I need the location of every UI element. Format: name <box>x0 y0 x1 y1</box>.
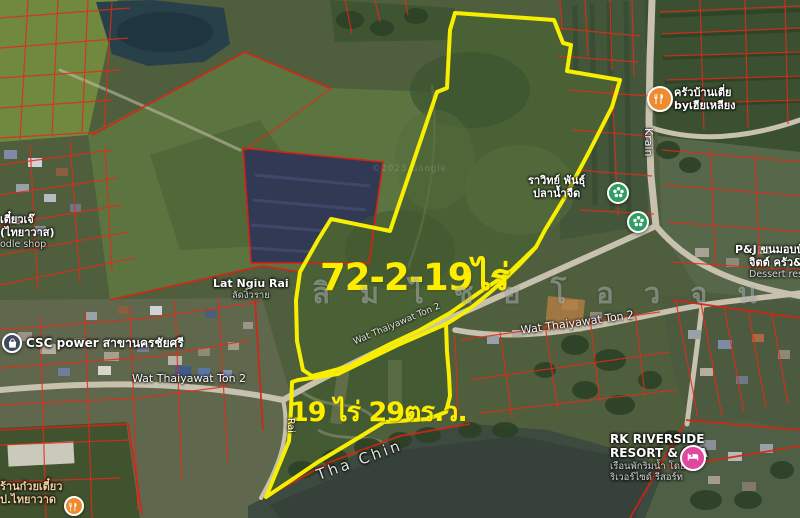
poi-category: Dessert resta <box>749 269 800 280</box>
poi-line: Lat Ngiu Rai <box>213 277 289 290</box>
poi-line: ป.ไทยาวาด <box>0 493 56 506</box>
poi-label-noodle-shop-topleft[interactable]: เตี๋ยวเจ๊ (ไทยาวาส) odle shop <box>0 213 55 251</box>
watermark-text: ลิ ม ไ ช ย โ อ ว จ น <box>312 270 767 316</box>
poi-line: จิตต์ ครัว& <box>749 256 800 269</box>
poi-label-krua-baan-tia[interactable]: ครัวบ้านเตี่ย byเฮียเหลียง <box>674 86 736 112</box>
poi-label-csc-power[interactable]: CSC power สาขานครชัยศรี <box>26 336 184 350</box>
restaurant-marker[interactable] <box>64 496 84 516</box>
poi-label-fish-farm[interactable]: ราวิทย์ พันธุ์ ปลาน้ำจืด <box>528 174 585 200</box>
lower-parcel-area-label: 19 ไร่ 29ตร.ว. <box>290 390 467 433</box>
poi-line: เตี๋ยวเจ๊ <box>0 213 34 226</box>
poi-line: ราวิทย์ พันธุ์ <box>528 174 585 187</box>
road-label-wat-thaiyawat-horizontal: Wat Thaiyawat Ton 2 <box>132 372 246 385</box>
poi-line: ปลาน้ำจืด <box>533 187 580 200</box>
poi-label-lat-ngiu-rai[interactable]: Lat Ngiu Rai ลัดงิ้วราย <box>213 277 289 302</box>
attraction-marker[interactable] <box>627 211 649 233</box>
poi-label-pj-dessert[interactable]: P&J ขนมอบบ้ จิตต์ ครัว& Dessert resta <box>735 243 800 281</box>
imagery-credit: ©2023 Google <box>372 164 447 174</box>
shopping-bag-icon <box>7 334 18 353</box>
fork-knife-icon <box>654 90 666 109</box>
poi-category: odle shop <box>0 239 55 250</box>
store-marker[interactable] <box>2 333 22 353</box>
road-label-rai: Rai <box>285 418 296 433</box>
poi-line: P&J ขนมอบบ้ <box>735 243 800 256</box>
poi-line: ร้านก๋วยเตี๋ยว <box>0 480 62 493</box>
flower-icon <box>632 213 645 232</box>
attraction-marker[interactable] <box>607 182 629 204</box>
road-label-krain: Krain <box>642 128 655 157</box>
flower-icon <box>612 184 625 203</box>
fork-knife-icon <box>69 497 79 516</box>
satellite-map-viewport[interactable]: 72-2-19ไร่ 19 ไร่ 29ตร.ว. ลิ ม ไ ช ย โ อ… <box>0 0 800 518</box>
poi-label-noodle-shop-bottomleft[interactable]: ร้านก๋วยเตี๋ยว ป.ไทยาวาด <box>0 480 62 506</box>
poi-line: ครัวบ้านเตี่ย <box>674 86 731 99</box>
restaurant-marker[interactable] <box>647 86 673 112</box>
poi-line: (ไทยาวาส) <box>0 226 55 239</box>
hotel-marker[interactable] <box>680 445 706 471</box>
poi-line: ลัดงิ้วราย <box>213 290 289 301</box>
poi-line: ริเวอร์ไซด์ รีสอร์ท <box>610 472 708 483</box>
bed-icon <box>686 449 700 468</box>
poi-line: RK RIVERSIDE <box>610 432 704 446</box>
poi-line: byเฮียเหลียง <box>674 99 736 112</box>
